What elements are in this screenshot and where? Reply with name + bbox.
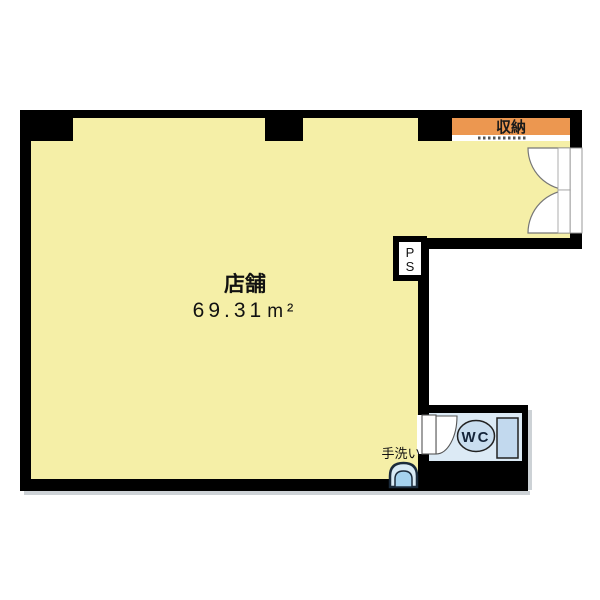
window-opening-left [73,118,265,142]
upper-section-bottom-wall [420,238,582,249]
hand-wash-label: 手洗い [381,446,420,461]
entry-door-opening [570,148,582,233]
shop-area-value: 69.31 [193,299,266,322]
bottom-wall-shadow [24,491,530,495]
window-opening-right [303,118,418,142]
shop-area-label: 69.31m² [193,299,298,322]
storage-label: 収納 [496,118,526,136]
hand-wash-sink-basin [395,471,412,487]
left-wall [20,110,31,491]
entry-door-leaf-top [558,148,570,190]
floor-plan-canvas: P S WC 手洗い 収納 店舗 69.31m² [0,0,600,600]
toilet-tank [497,418,518,458]
shop-room-label: 店舗 [224,272,266,296]
top-wall-pillar-2 [418,110,452,141]
ps-label-line1: P [406,245,415,260]
entry-door-leaf-bottom [558,190,570,233]
wc-block-shadow [528,410,532,490]
floor-plan-page: P S WC 手洗い 収納 店舗 69.31m² [0,0,600,600]
wc-label: WC [462,429,491,446]
top-wall-pillar-1 [265,110,303,141]
wc-door-leaf [422,415,436,454]
shop-area-unit: m² [267,301,297,322]
ps-label-line2: S [406,259,415,274]
